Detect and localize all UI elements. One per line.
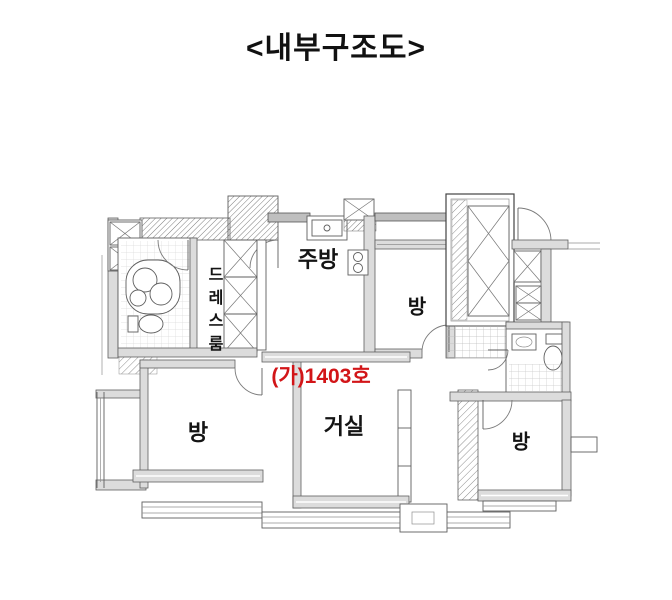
room-label-room-left: 방 [188,415,208,447]
laundry-box-icon [400,504,447,532]
elevator-shaft-icon [468,206,509,316]
duct-box-icon [516,303,541,320]
room-label-dress-room: 드레스룸 [205,266,221,358]
bathtub-icon [126,260,180,314]
window-band [142,502,262,518]
elevator [446,194,514,358]
sink-icon [512,334,536,350]
room-label-kitchen: 주방 [298,242,338,274]
toilet-icon [128,315,163,333]
window-band [483,501,556,511]
floor-plan-drawing [0,0,672,600]
duct-box-icon [516,286,541,303]
room-label-living-room: 거실 [324,409,364,441]
entrance-area [512,208,600,322]
duct-label: AD [0,0,336,3]
window-band [262,512,510,528]
room-label-room-top: 방 [408,291,426,320]
unit-number-label: (가)1403호 [271,360,370,390]
stove-icon [348,250,368,275]
floor-plan-page: <내부구조도> 주방 방 드레스룸 (가)1403호 방 거실 방 AD [0,0,672,600]
room-top [375,194,455,358]
duct-box-icon [514,251,541,282]
kitchen-sink-icon [307,216,347,240]
page-title: <내부구조도> [246,23,426,67]
kitchen [268,199,376,358]
closet-column [398,390,411,502]
room-label-room-right: 방 [512,426,530,455]
